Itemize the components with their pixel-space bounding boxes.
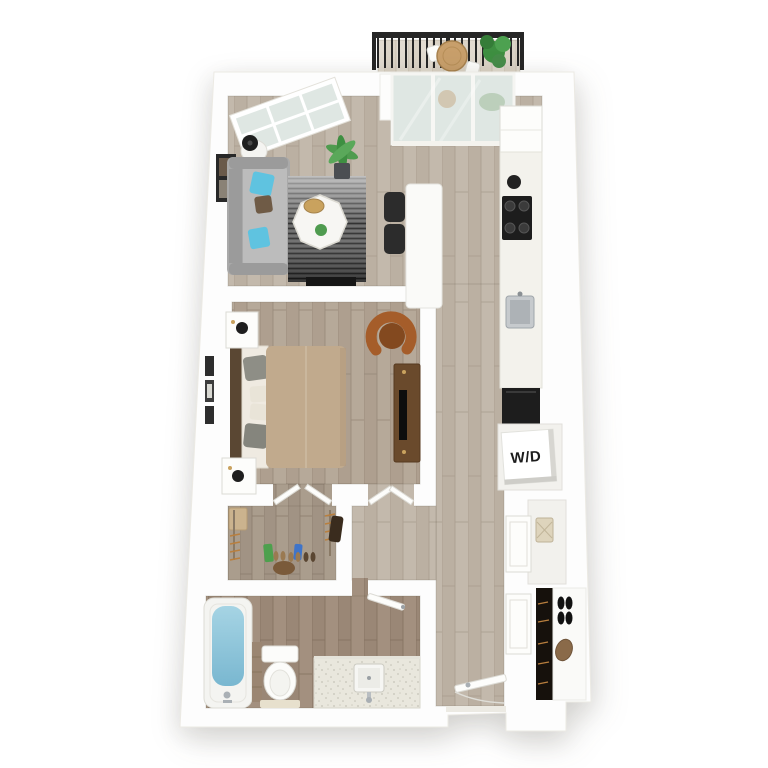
floor-plan-svg: W/D [0, 0, 768, 768]
tile-partition [252, 642, 262, 702]
table-reflection [438, 90, 456, 108]
sofa [227, 157, 290, 275]
linen-niche [528, 500, 566, 584]
door-handle [466, 683, 471, 688]
bar-chair [384, 224, 405, 254]
bedside-lamp [236, 322, 248, 334]
balcony [372, 32, 524, 78]
gold-tray [304, 199, 324, 213]
nightstand [222, 458, 256, 494]
vanity [314, 656, 420, 708]
sink-faucet [366, 697, 372, 703]
woven-basket [536, 518, 553, 542]
media-bar [306, 277, 356, 286]
bath-mat [260, 700, 300, 708]
closet-door-panel [506, 594, 531, 654]
hall-junction-floor [352, 506, 436, 580]
faucet [518, 292, 523, 297]
coat-closet [536, 588, 586, 700]
wall-frames [205, 356, 214, 424]
kettle [507, 175, 521, 189]
brown-item [273, 561, 295, 575]
kitchen-counter [500, 152, 542, 388]
white-pillow [249, 403, 268, 421]
bar-chair [384, 192, 405, 222]
kitchen-sink [506, 292, 534, 329]
headboard [230, 348, 242, 466]
washer-dryer-label: W/D [510, 448, 542, 467]
balcony-sliding-door [380, 74, 514, 146]
cooktop [502, 196, 532, 240]
brown-pillow [254, 195, 273, 214]
tv [399, 390, 407, 440]
media-console [394, 364, 420, 462]
green-garment [263, 544, 274, 563]
kitchen [500, 106, 542, 430]
door-handle [401, 605, 405, 609]
nightstand [226, 312, 258, 348]
table-plant [315, 224, 327, 236]
white-pillow [249, 385, 268, 402]
bedside-lamp [232, 470, 244, 482]
closet-door-panel [506, 516, 531, 572]
gray-pillow [242, 354, 269, 381]
bath-water [212, 606, 244, 686]
gray-pillow [243, 423, 269, 449]
bed [230, 346, 346, 468]
floor-plan-canvas: W/D [0, 0, 768, 768]
bathroom-door-opening [352, 578, 368, 598]
plant-pot [334, 163, 350, 179]
laundry-closet: W/D [498, 424, 562, 490]
tub-faucet [224, 692, 231, 699]
blue-pillow [249, 171, 275, 197]
hallway-floor [436, 284, 504, 706]
bathtub [204, 598, 252, 708]
storage-box [229, 508, 247, 530]
blue-pillow [247, 226, 270, 249]
coffee-table [293, 195, 347, 249]
